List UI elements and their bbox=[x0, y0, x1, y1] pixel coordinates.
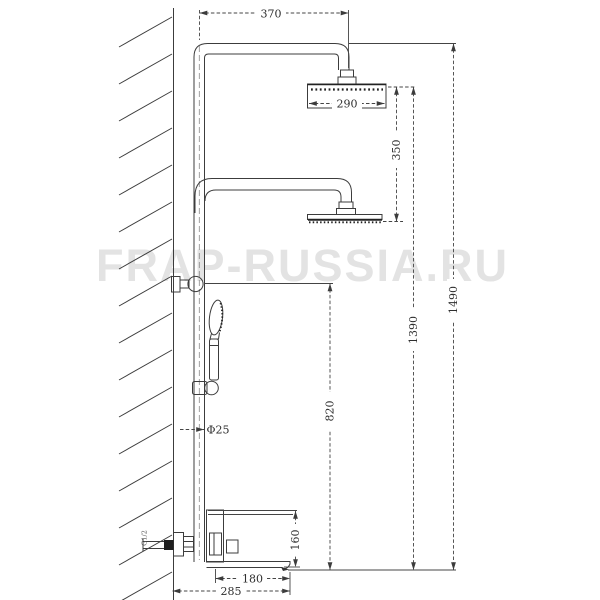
slider-clamp bbox=[193, 381, 219, 395]
dim-180-label: 180 bbox=[242, 573, 263, 586]
dim-1390-label: 1390 bbox=[407, 316, 420, 344]
technical-drawing: FRAP-RUSSIA.RU bbox=[0, 0, 600, 600]
dim-820-label: 820 bbox=[324, 401, 337, 422]
dim-1490-label: 1490 bbox=[447, 286, 460, 314]
dim-370-label: 370 bbox=[261, 8, 282, 21]
lower-shower-head bbox=[308, 215, 383, 223]
wall-bracket bbox=[172, 276, 204, 292]
thread-size-label: G1/2 bbox=[141, 530, 149, 546]
dim-285-label: 285 bbox=[221, 585, 242, 598]
dim-350-label: 350 bbox=[390, 140, 403, 161]
lower-shower-arm bbox=[195, 179, 356, 215]
dim-pipe-diameter-label: Φ25 bbox=[207, 424, 230, 437]
riser-pipe bbox=[194, 44, 349, 563]
shower-system-diagram: 370 290 350 1390 1490 820 bbox=[0, 0, 600, 600]
dimensions: 370 290 350 1390 1490 820 bbox=[141, 7, 461, 598]
diverter-knob bbox=[227, 540, 239, 553]
spout bbox=[207, 562, 291, 572]
hand-shower-face bbox=[220, 303, 223, 332]
wall bbox=[119, 8, 174, 600]
hand-shower bbox=[207, 299, 224, 380]
wall-flange bbox=[174, 533, 184, 557]
wall-hatching bbox=[119, 17, 172, 600]
supply-seal bbox=[164, 540, 174, 550]
dim-290-label: 290 bbox=[337, 98, 358, 111]
connector-nut bbox=[184, 537, 194, 552]
mixer-body bbox=[143, 510, 297, 562]
dim-160-label: 160 bbox=[289, 530, 302, 551]
